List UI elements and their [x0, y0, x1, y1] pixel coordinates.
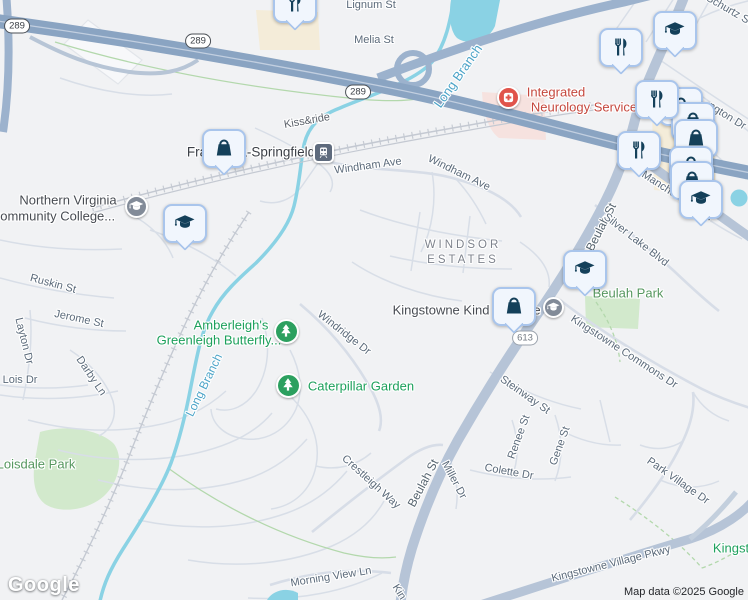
tree-icon: [277, 322, 295, 340]
tree-icon: [279, 376, 297, 394]
map-attribution: Map data ©2025 Google: [624, 586, 744, 598]
label-kingst: Kingst: [713, 541, 748, 556]
education-poi-marker[interactable]: [653, 11, 697, 50]
route-shield-289: 289: [345, 85, 371, 100]
education-poi-marker[interactable]: [679, 180, 723, 219]
google-logo[interactable]: Google: [8, 574, 80, 597]
restaurant-poi-marker[interactable]: [617, 131, 661, 170]
route-shield-613: 613: [512, 331, 538, 346]
label-northern-virginia: Northern Virginia: [19, 193, 116, 208]
label-windsor: WINDSOR: [425, 239, 502, 251]
bag-poi-marker[interactable]: [492, 287, 536, 326]
label-integrated: Integrated: [527, 85, 586, 100]
label-lois-dr: Lois Dr: [3, 374, 38, 386]
label-greenleigh-butterfly: Greenleigh Butterfly...: [157, 333, 282, 348]
collector-roads: [270, 162, 748, 585]
tree-marker[interactable]: [274, 319, 299, 344]
route-shield-289: 289: [4, 19, 30, 34]
kingstowne-village-pkwy-road: [452, 496, 748, 600]
bag-icon: [212, 136, 236, 160]
education-dot-marker[interactable]: [543, 297, 564, 318]
label-loisdale-park: Loisdale Park: [0, 457, 75, 472]
education-icon: [689, 187, 713, 211]
education-icon: [663, 18, 687, 42]
label-caterpillar-garden: Caterpillar Garden: [308, 379, 414, 394]
education-dot-icon: [546, 300, 561, 315]
bag-icon: [502, 294, 526, 318]
label-neurology-service: Neurology Service: [531, 100, 637, 115]
tree-marker[interactable]: [276, 373, 301, 398]
bag-poi-marker[interactable]: [202, 129, 246, 168]
education-icon: [573, 257, 597, 281]
map-canvas[interactable]: Google Map data ©2025 Google Lignum StMe…: [0, 0, 748, 600]
hospital-icon: [500, 89, 517, 106]
label-estates: ESTATES: [427, 254, 499, 266]
label-kingstowne-kind: Kingstowne Kind: [393, 303, 490, 318]
restaurant-icon: [627, 138, 651, 162]
restaurant-icon: [609, 35, 633, 59]
education-icon: [173, 211, 197, 235]
education-poi-marker[interactable]: [163, 204, 207, 243]
station-icon: [316, 145, 331, 160]
hospital-marker[interactable]: [497, 86, 520, 109]
label-melia-st: Melia St: [354, 34, 394, 46]
label-beulah-park: Beulah Park: [593, 286, 664, 301]
restaurant-poi-marker[interactable]: [635, 80, 679, 119]
station-marker[interactable]: [313, 142, 334, 163]
education-dot-icon: [128, 198, 145, 215]
route-shield-289: 289: [185, 34, 211, 49]
education-poi-marker[interactable]: [563, 250, 607, 289]
education-dot-marker[interactable]: [125, 195, 148, 218]
label-amberleigh-s: Amberleigh's: [194, 318, 269, 333]
restaurant-poi-marker[interactable]: [599, 28, 643, 67]
restaurant-icon: [645, 87, 669, 111]
label-community-college: Community College...: [0, 209, 115, 224]
label-lignum-st: Lignum St: [346, 0, 396, 11]
restaurant-icon: [283, 0, 307, 15]
restaurant-poi-marker[interactable]: [273, 0, 317, 23]
